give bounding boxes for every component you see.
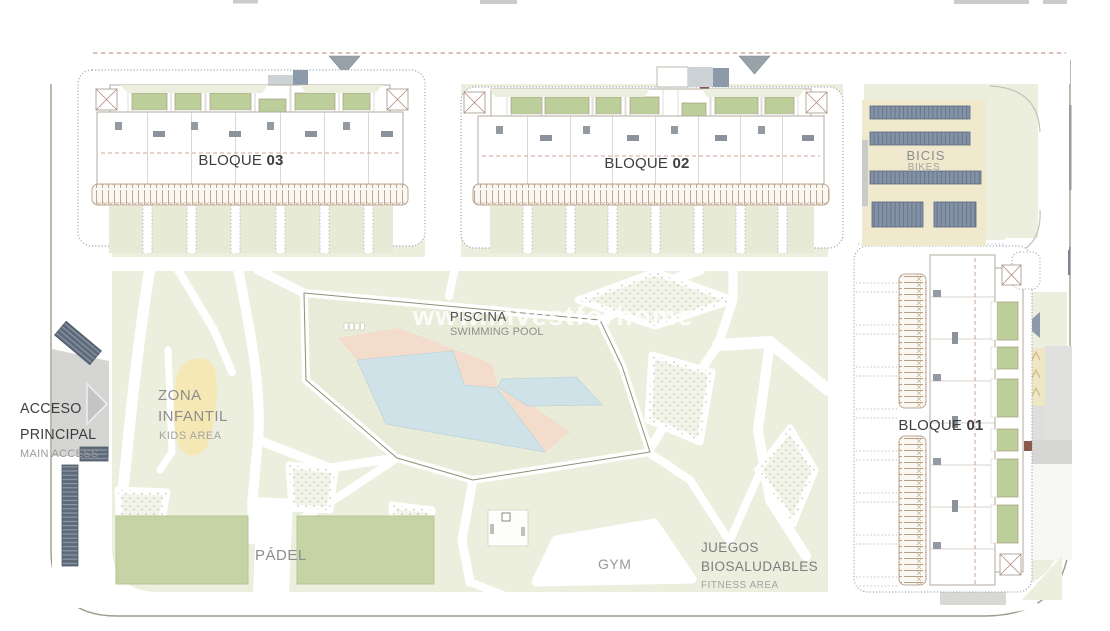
svg-text:JUEGOS: JUEGOS [701,540,759,555]
svg-text:GYM: GYM [598,556,631,572]
svg-text:BLOQUE 01: BLOQUE 01 [898,417,983,434]
svg-text:FITNESS AREA: FITNESS AREA [701,580,779,591]
svg-text:BICIS: BICIS [907,148,946,163]
svg-text:SWIMMING POOL: SWIMMING POOL [450,326,544,338]
svg-text:PRINCIPAL: PRINCIPAL [20,427,96,443]
svg-text:ZONA: ZONA [158,387,202,404]
svg-text:MAIN ACCESS: MAIN ACCESS [20,448,99,460]
svg-text:PÁDEL: PÁDEL [255,547,307,564]
svg-text:PISCINA: PISCINA [450,309,507,324]
svg-text:BIOSALUDABLES: BIOSALUDABLES [701,559,818,574]
svg-text:INFANTIL: INFANTIL [158,408,228,425]
svg-text:BIKES: BIKES [908,162,940,173]
svg-text:BLOQUE 02: BLOQUE 02 [604,155,689,172]
svg-text:ACCESO: ACCESO [20,401,82,417]
svg-text:BLOQUE 03: BLOQUE 03 [198,152,283,169]
svg-text:KIDS AREA: KIDS AREA [159,430,222,442]
